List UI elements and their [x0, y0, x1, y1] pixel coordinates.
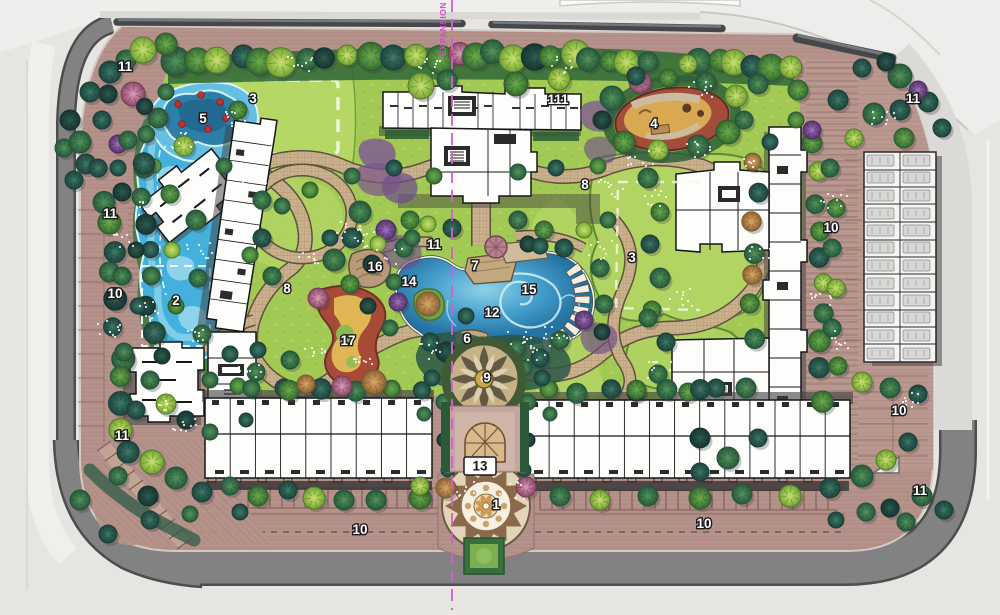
svg-text:11: 11: [913, 483, 928, 498]
svg-text:13: 13: [472, 459, 488, 474]
svg-text:14: 14: [401, 274, 417, 289]
svg-text:7: 7: [471, 258, 479, 273]
svg-text:3: 3: [249, 91, 257, 106]
svg-text:10: 10: [891, 403, 906, 418]
svg-text:17: 17: [340, 333, 355, 348]
svg-text:111: 111: [547, 92, 569, 107]
svg-text:2: 2: [172, 293, 180, 308]
svg-text:10: 10: [352, 522, 367, 537]
svg-text:11: 11: [118, 59, 133, 74]
svg-text:16: 16: [367, 259, 383, 274]
svg-text:10: 10: [823, 220, 838, 235]
svg-text:1: 1: [492, 497, 500, 512]
svg-text:15: 15: [521, 282, 537, 297]
svg-text:11: 11: [103, 206, 118, 221]
svg-text:10: 10: [107, 286, 122, 301]
svg-text:EXPANSION: EXPANSION: [438, 2, 448, 56]
svg-text:12: 12: [484, 305, 499, 320]
svg-text:9: 9: [483, 370, 491, 385]
svg-text:3: 3: [628, 250, 636, 265]
svg-text:8: 8: [283, 281, 291, 296]
svg-text:10: 10: [696, 516, 711, 531]
svg-text:8: 8: [581, 177, 589, 192]
svg-text:11: 11: [906, 91, 921, 106]
svg-text:11: 11: [115, 428, 130, 443]
svg-text:5: 5: [199, 111, 207, 126]
svg-text:4: 4: [650, 116, 658, 131]
svg-text:11: 11: [427, 237, 442, 252]
svg-text:6: 6: [463, 331, 471, 346]
